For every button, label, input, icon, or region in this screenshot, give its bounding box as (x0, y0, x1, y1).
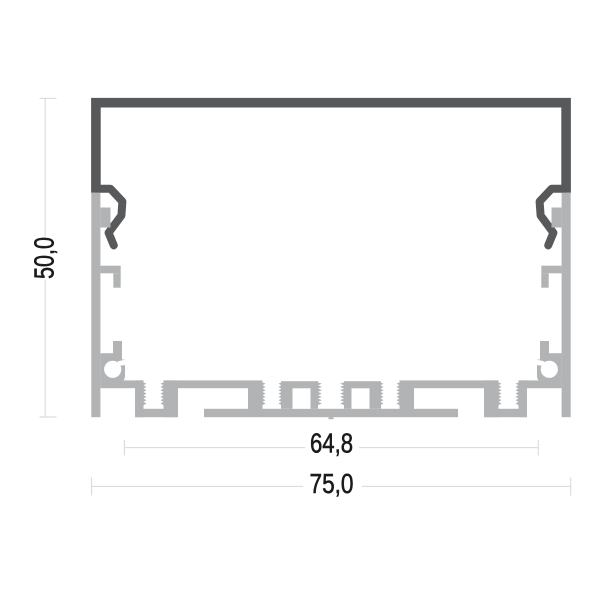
svg-text:64,8: 64,8 (310, 427, 353, 459)
svg-text:75,0: 75,0 (310, 467, 354, 499)
svg-text:50,0: 50,0 (28, 237, 60, 279)
